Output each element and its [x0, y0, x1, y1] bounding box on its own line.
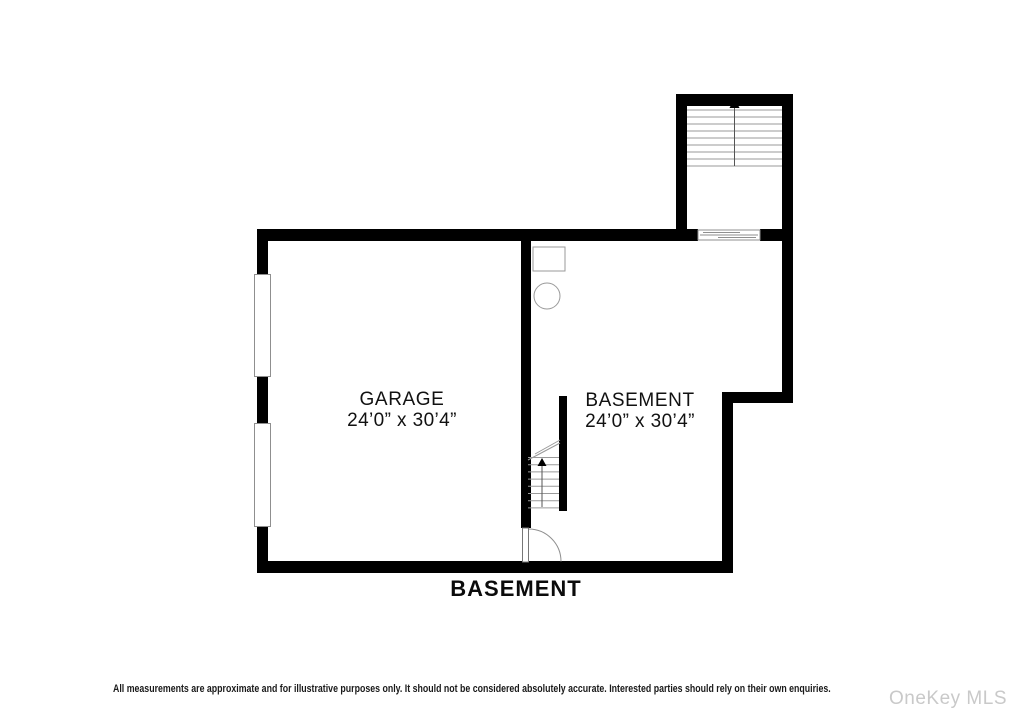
basement-staircase: [528, 440, 560, 508]
utility-box: [533, 247, 565, 271]
wall-stair-side: [559, 396, 567, 511]
floor-title: BASEMENT: [450, 576, 581, 602]
wall-left-middle: [257, 376, 268, 424]
sliding-door: [698, 230, 760, 240]
basement-stair-up-arrow-icon: [538, 458, 547, 466]
basement-room-label: BASEMENT: [585, 390, 694, 412]
wall-top-main: [257, 229, 698, 241]
garage-door-opening-upper: [255, 275, 271, 377]
wall-stairwell-left: [676, 94, 687, 241]
garage-room-label: GARAGE: [360, 389, 445, 411]
floorplan-drawing: [0, 0, 1016, 720]
wall-divider: [521, 229, 531, 528]
basement-room-dimensions: 24’0” x 30’4”: [585, 411, 695, 433]
utility-tank-circle: [534, 283, 560, 309]
wall-top-right-stub: [760, 229, 793, 241]
disclaimer-text: All measurements are approximate and for…: [113, 683, 831, 695]
door-leaf: [523, 528, 529, 562]
watermark-onekey-mls: OneKey MLS: [889, 688, 1007, 710]
upper-staircase: [687, 107, 782, 166]
wall-right-lower: [722, 392, 733, 573]
garage-room-dimensions: 24’0” x 30’4”: [347, 410, 457, 432]
garage-door-opening-lower: [255, 424, 271, 527]
wall-right-upper: [782, 94, 793, 403]
wall-left-upper: [257, 229, 268, 275]
stair-break-line-2: [535, 440, 560, 454]
swing-door: [523, 528, 562, 562]
floorplan-page: GARAGE 24’0” x 30’4” BASEMENT 24’0” x 30…: [0, 0, 1016, 720]
wall-bottom: [257, 561, 733, 573]
wall-left-lower: [257, 526, 268, 573]
